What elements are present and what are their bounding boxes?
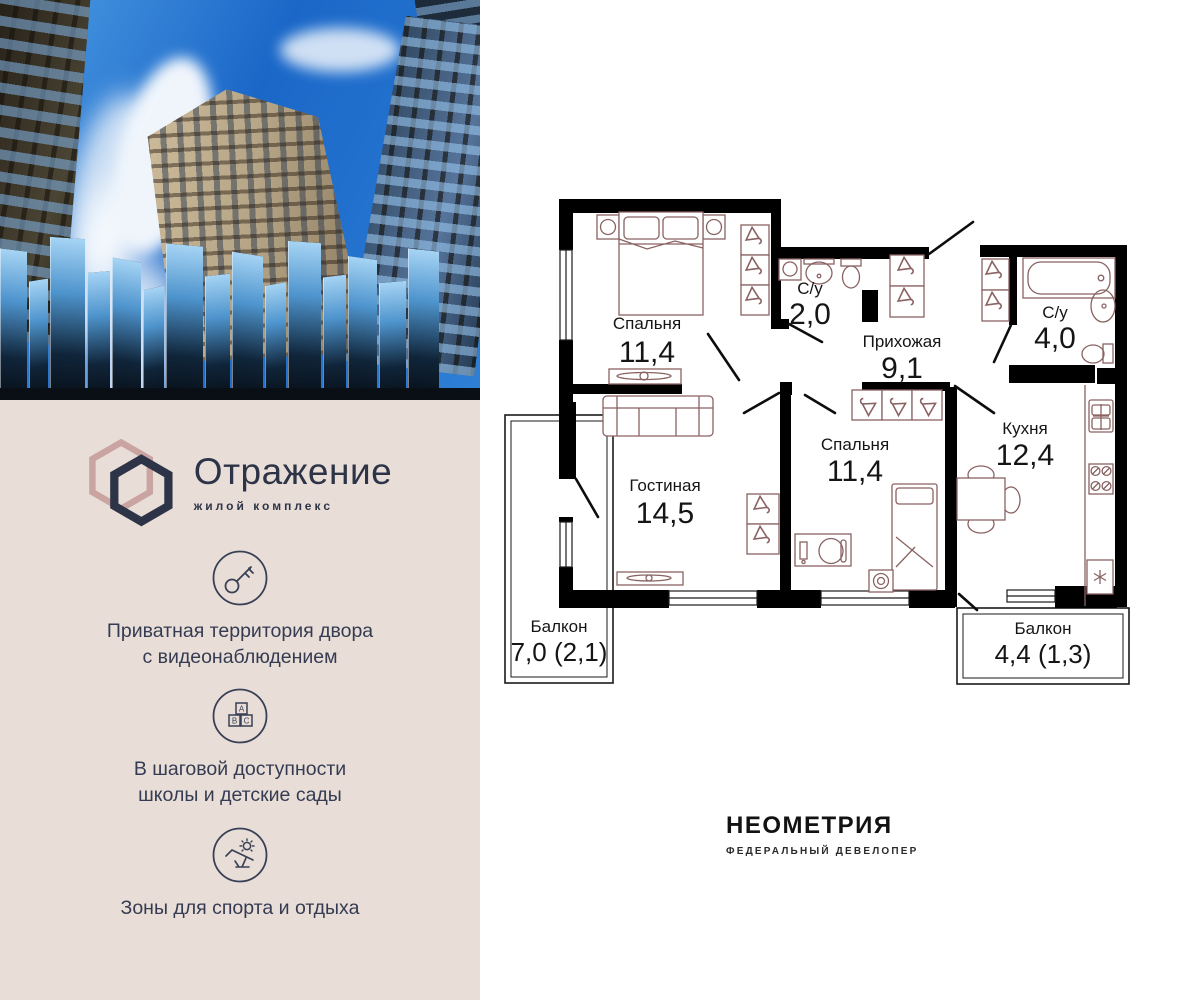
building-photo [0,0,480,400]
floor-plan: Спальня 11,4 С/у 2,0 Прихожая 9,1 С/у 4,… [497,182,1142,707]
brand-panel: Отражение жилой комплекс Приватная терри… [0,400,480,1000]
room-area: 12,4 [996,439,1054,472]
brand-title: Отражение [194,451,392,493]
room-name: Спальня [613,314,681,333]
developer-tagline: ФЕДЕРАЛЬНЫЙ ДЕВЕЛОПЕР [726,846,919,857]
room-area: 14,5 [636,497,694,530]
feature-private-yard: Приватная территория двора с видеонаблюд… [107,549,373,670]
room-area: 7,0 (2,1) [511,637,608,667]
sun-lounger-icon [211,826,269,884]
svg-text:А: А [239,705,245,714]
hexagon-logo-icon [88,433,180,531]
key-icon [211,549,269,607]
room-area: 11,4 [827,455,883,488]
feature-text: В шаговой доступности школы и детские са… [134,756,346,808]
room-name: С/у [797,279,823,298]
svg-text:С: С [244,717,250,726]
feature-schools: А В С В шаговой доступности школы и детс… [134,687,346,808]
room-area: 4,4 (1,3) [995,639,1092,669]
feature-text: Приватная территория двора с видеонаблюд… [107,618,373,670]
room-area: 2,0 [789,298,831,331]
room-name: Балкон [1014,619,1071,638]
brand-logo: Отражение жилой комплекс [88,433,392,531]
brand-subtitle: жилой комплекс [194,499,392,513]
mirror-sculptures [0,232,480,400]
room-name: Спальня [821,435,889,454]
developer-name: НЕОМЕТРИЯ [726,812,919,840]
cloud [280,28,400,72]
room-name: С/у [1042,303,1068,322]
room-area: 4,0 [1034,322,1076,355]
room-name: Кухня [1002,419,1048,438]
developer-logo: НЕОМЕТРИЯ ФЕДЕРАЛЬНЫЙ ДЕВЕЛОПЕР [726,812,919,857]
feature-sport-zones: Зоны для спорта и отдыха [121,826,360,921]
feature-text: Зоны для спорта и отдыха [121,895,360,921]
abc-blocks-icon: А В С [211,687,269,745]
room-name: Балкон [530,617,587,636]
flyer: Отражение жилой комплекс Приватная терри… [0,0,1200,1000]
room-area: 11,4 [619,336,675,369]
svg-text:В: В [232,717,237,726]
photo-ground [0,388,480,400]
furniture [597,212,1115,606]
room-name: Гостиная [629,476,700,495]
room-area: 9,1 [881,352,923,385]
room-name: Прихожая [863,332,942,351]
